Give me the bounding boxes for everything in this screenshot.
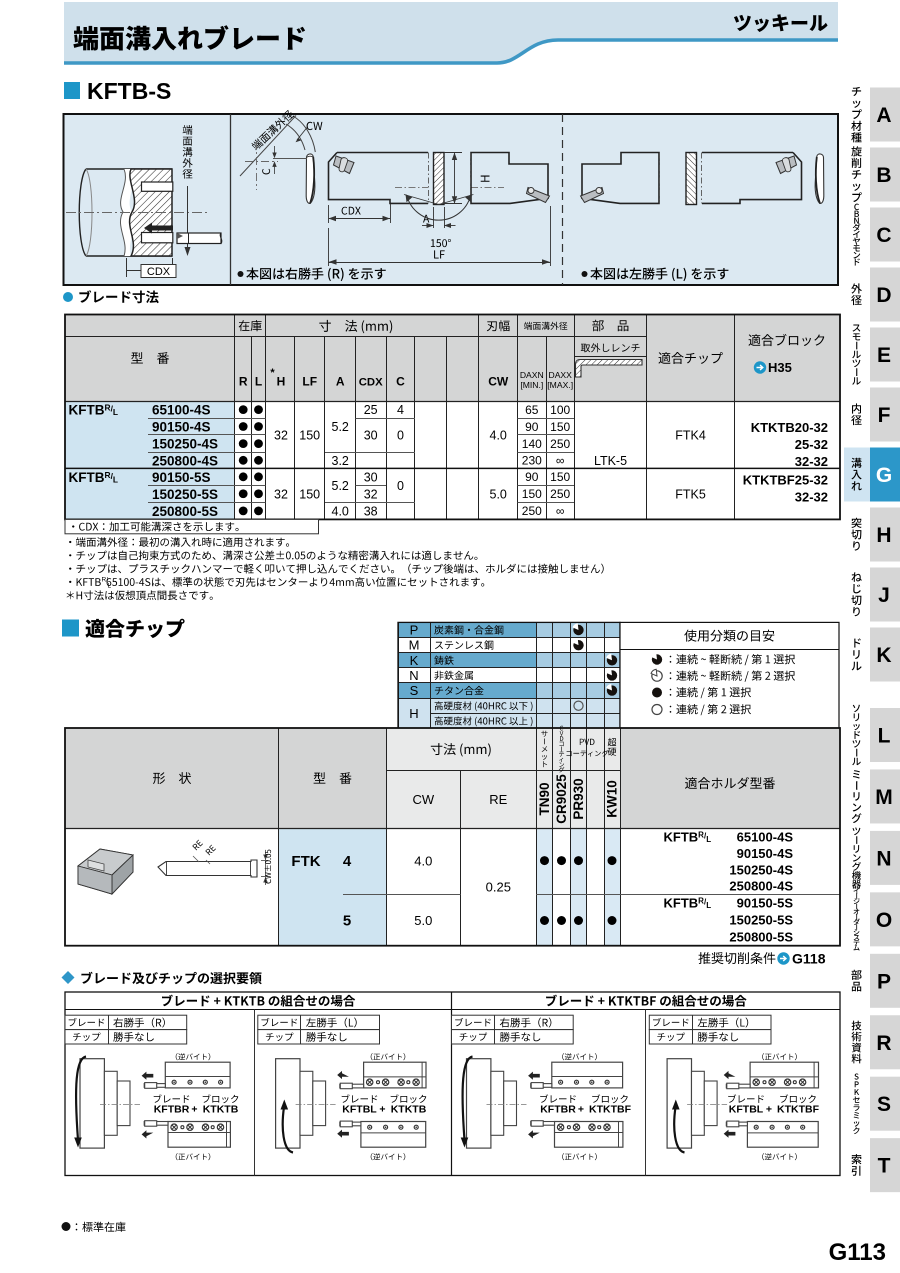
svg-text:KTKTBF: KTKTBF [589, 1104, 632, 1116]
svg-text:G118: G118 [792, 951, 826, 967]
svg-text:H: H [277, 375, 286, 389]
svg-text:+: + [578, 1104, 584, 1116]
svg-text:32: 32 [274, 428, 288, 442]
svg-text:N: N [876, 847, 891, 870]
svg-text:150250-5S: 150250-5S [729, 913, 793, 928]
svg-text:CW: CW [488, 375, 509, 389]
svg-text:5.0: 5.0 [414, 913, 432, 928]
svg-text:KFTB-S: KFTB-S [87, 78, 171, 104]
svg-text:L: L [878, 725, 891, 748]
svg-text:4.0: 4.0 [414, 854, 432, 869]
svg-text:CDX: CDX [359, 377, 383, 389]
svg-text:250: 250 [550, 487, 570, 501]
svg-text:38: 38 [364, 504, 378, 518]
svg-text:100: 100 [550, 403, 570, 417]
svg-text:[MAX.]: [MAX.] [547, 380, 573, 390]
svg-text:FTK4: FTK4 [675, 428, 706, 442]
svg-text:0: 0 [397, 479, 404, 493]
svg-text:150: 150 [522, 487, 542, 501]
svg-text:150250-4S: 150250-4S [152, 437, 218, 452]
svg-text:B: B [876, 164, 891, 187]
svg-text:30: 30 [364, 470, 378, 484]
svg-text:4.0: 4.0 [490, 428, 507, 442]
svg-text:+: + [379, 1104, 385, 1116]
svg-text:KFTBR: KFTBR [154, 1104, 190, 1116]
svg-text:E: E [877, 344, 891, 367]
svg-text:150250-4S: 150250-4S [729, 862, 793, 877]
svg-text:H: H [876, 524, 891, 547]
svg-text:+: + [191, 1104, 197, 1116]
svg-text:KFTBR: KFTBR [540, 1104, 576, 1116]
svg-text:RE: RE [489, 792, 507, 807]
svg-text:DAXN: DAXN [520, 370, 544, 380]
svg-text:R: R [239, 375, 248, 389]
svg-text:32-32: 32-32 [795, 454, 828, 469]
svg-text:4.0: 4.0 [332, 504, 349, 518]
svg-text:90150-5S: 90150-5S [152, 470, 211, 485]
svg-text:CR9025: CR9025 [554, 774, 569, 824]
svg-text:M: M [875, 786, 893, 809]
svg-text:S: S [410, 683, 419, 698]
svg-text:5.2: 5.2 [332, 420, 349, 434]
svg-text:250800-4S: 250800-4S [729, 879, 793, 894]
svg-text:O: O [876, 909, 892, 932]
svg-text:90: 90 [525, 470, 539, 484]
svg-text:250800-5S: 250800-5S [729, 930, 793, 945]
svg-text:K: K [876, 644, 891, 667]
svg-text:32: 32 [274, 487, 288, 501]
svg-text:H35: H35 [768, 360, 792, 375]
svg-text:FTK: FTK [291, 853, 320, 870]
svg-text:K: K [410, 653, 419, 668]
svg-text:250: 250 [550, 437, 570, 451]
svg-text:KTKTBF: KTKTBF [777, 1104, 820, 1116]
svg-text:90150-4S: 90150-4S [152, 420, 211, 435]
svg-text:5.0: 5.0 [490, 487, 507, 501]
svg-text:250800-4S: 250800-4S [152, 453, 218, 468]
svg-text:0: 0 [397, 429, 404, 443]
svg-text:C: C [876, 224, 891, 247]
svg-text:150: 150 [299, 428, 320, 442]
svg-text:H: H [409, 706, 418, 721]
svg-text:65: 65 [525, 403, 539, 417]
svg-text:65100-4S: 65100-4S [737, 830, 794, 845]
svg-text:90: 90 [525, 420, 539, 434]
svg-text:TN90: TN90 [537, 782, 552, 815]
svg-text:CW: CW [412, 792, 434, 807]
svg-text:90150-4S: 90150-4S [737, 846, 794, 861]
svg-text:FTK5: FTK5 [675, 487, 706, 501]
svg-text:G: G [876, 464, 892, 487]
svg-text:LTK-5: LTK-5 [594, 454, 627, 468]
svg-text:30: 30 [364, 429, 378, 443]
svg-text:PR930: PR930 [571, 778, 586, 819]
svg-text:25-32: 25-32 [795, 437, 828, 452]
svg-text:C: C [396, 375, 405, 389]
svg-text:3.2: 3.2 [332, 454, 349, 468]
svg-text:L: L [108, 583, 112, 590]
svg-text:150: 150 [550, 420, 570, 434]
svg-text:65100-4S: 65100-4S [152, 403, 211, 418]
svg-text:G113: G113 [829, 1239, 886, 1266]
svg-text:J: J [878, 584, 890, 607]
svg-text:KFTBL: KFTBL [729, 1104, 764, 1116]
svg-text:KTKTB: KTKTB [203, 1104, 239, 1116]
svg-text:D: D [876, 284, 891, 307]
svg-text:KTKTB: KTKTB [391, 1104, 427, 1116]
svg-text:DAXX: DAXX [548, 370, 572, 380]
svg-text:∞: ∞ [556, 504, 565, 518]
svg-text:LF: LF [302, 375, 317, 389]
svg-text:150250-5S: 150250-5S [152, 487, 218, 502]
svg-text:L: L [255, 375, 262, 389]
svg-text:230: 230 [522, 454, 542, 468]
svg-text:T: T [878, 1155, 891, 1178]
svg-text:A: A [336, 375, 345, 389]
svg-text:250: 250 [522, 504, 542, 518]
svg-text:4: 4 [397, 403, 404, 417]
svg-text:F: F [878, 404, 891, 427]
svg-text:M: M [409, 638, 420, 653]
svg-text:P: P [877, 970, 891, 993]
svg-text:150: 150 [299, 487, 320, 501]
svg-text:5: 5 [343, 913, 351, 930]
svg-text:32-32: 32-32 [795, 490, 828, 505]
svg-text:140: 140 [522, 437, 542, 451]
svg-text:5.2: 5.2 [332, 479, 349, 493]
svg-text:[MIN.]: [MIN.] [520, 380, 543, 390]
svg-text:S: S [877, 1093, 891, 1116]
svg-text:N: N [409, 668, 418, 683]
svg-text:P: P [410, 623, 419, 638]
svg-text:0.25: 0.25 [486, 880, 511, 895]
svg-text:KFTBL: KFTBL [342, 1104, 377, 1116]
svg-text:R: R [876, 1032, 891, 1055]
svg-text:∞: ∞ [556, 454, 565, 468]
svg-text:250800-5S: 250800-5S [152, 504, 218, 519]
svg-text:*: * [270, 367, 275, 379]
svg-text:KW10: KW10 [605, 780, 620, 818]
svg-text:32: 32 [364, 487, 378, 501]
svg-text:90150-5S: 90150-5S [737, 896, 794, 911]
svg-text:150: 150 [550, 470, 570, 484]
svg-text:CDX: CDX [147, 266, 171, 278]
svg-text:+: + [766, 1104, 772, 1116]
svg-text:A: A [876, 104, 891, 127]
svg-text:25: 25 [364, 403, 378, 417]
svg-text:KTKTBF25-32: KTKTBF25-32 [743, 473, 828, 488]
svg-text:4: 4 [343, 853, 352, 870]
svg-text:KTKTB20-32: KTKTB20-32 [751, 420, 828, 435]
